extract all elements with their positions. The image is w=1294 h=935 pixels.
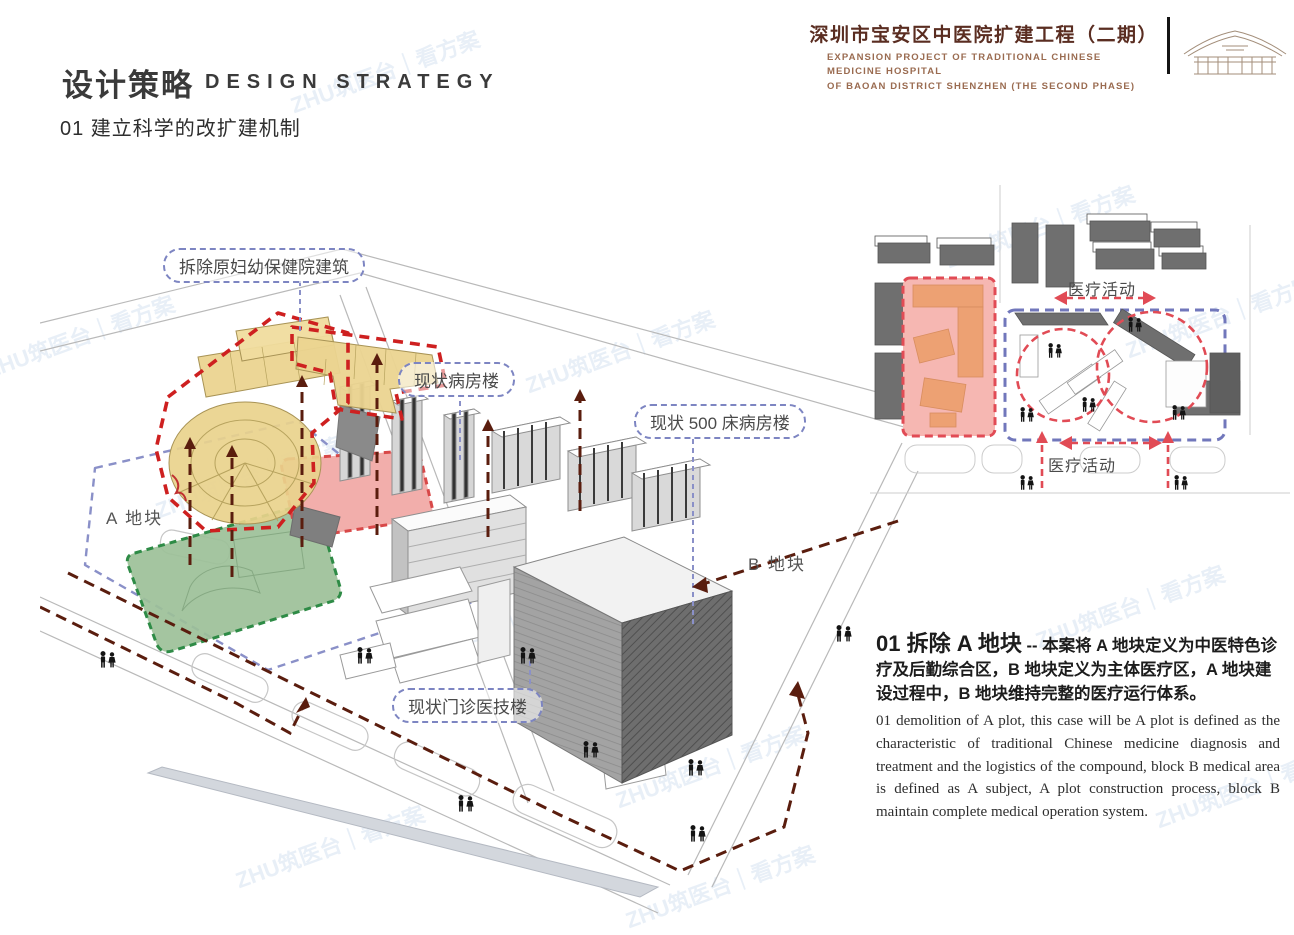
section-subtitle: 01 建立科学的改扩建机制 (60, 112, 301, 141)
description-block: 01 拆除 A 地块 -- 本案将 A 地块定义为中医特色诊疗及后勤综合区，B … (876, 628, 1280, 824)
description-heading-number: 01 拆除 A 地块 (876, 631, 1022, 656)
site-axonometric-diagram (40, 235, 920, 915)
label-existing-clinic: 现状门诊医技楼 (392, 688, 543, 723)
description-heading: 01 拆除 A 地块 -- 本案将 A 地块定义为中医特色诊疗及后勤综合区，B … (876, 628, 1280, 706)
label-medical-activity-top: 医疗活动 (1068, 276, 1136, 300)
label-plot-b: B 地块 (748, 550, 806, 575)
header-divider-bar (1167, 17, 1170, 74)
project-title-en-line1: EXPANSION PROJECT OF TRADITIONAL CHINESE… (827, 52, 1101, 77)
existing-buildings (340, 381, 732, 789)
project-title-en-line2: OF BAOAN DISTRICT SHENZHEN (THE SECOND P… (827, 81, 1135, 92)
project-title-en: EXPANSION PROJECT OF TRADITIONAL CHINESE… (760, 51, 1158, 94)
description-heading-dash: -- (1022, 637, 1042, 655)
description-body-en: 01 demolition of A plot, this case will … (876, 710, 1280, 824)
mini-plot-b-zone (1005, 309, 1240, 440)
project-title-block: 深圳市宝安区中医院扩建工程（二期） EXPANSION PROJECT OF T… (760, 20, 1158, 94)
section-title-en: DESIGN STRATEGY (205, 71, 500, 94)
road-strip (148, 767, 658, 897)
section-title-cn: 设计策略 (62, 60, 194, 105)
mini-pink-zone (903, 278, 995, 436)
label-existing-500bed: 现状 500 床病房楼 (634, 404, 806, 439)
label-existing-ward: 现状病房楼 (398, 362, 515, 397)
label-medical-activity-bottom: 医疗活动 (1048, 452, 1116, 476)
label-plot-a: A 地块 (106, 504, 163, 529)
label-demolish: 拆除原妇幼保健院建筑 (163, 248, 365, 283)
roof-truss-logo-icon (1180, 22, 1290, 80)
presentation-slide: { "header": { "project_title_cn": "深圳市宝安… (0, 0, 1294, 915)
project-title-cn: 深圳市宝安区中医院扩建工程（二期） (760, 20, 1158, 47)
